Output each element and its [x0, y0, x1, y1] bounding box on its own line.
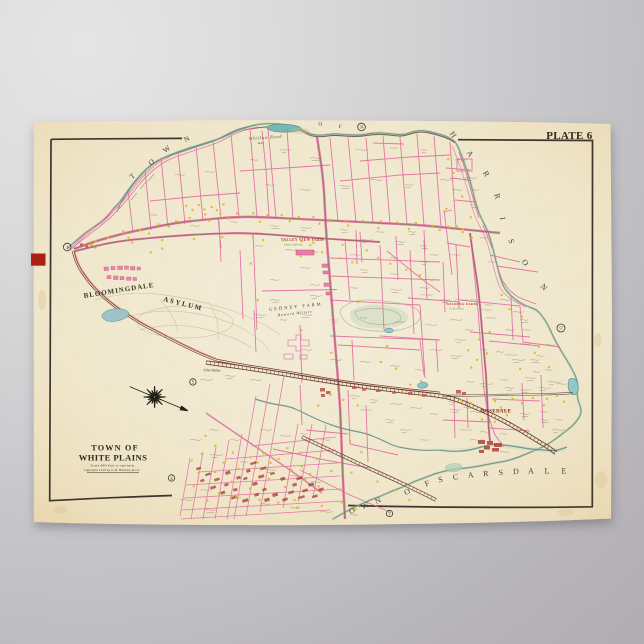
svg-text:S. M. Orser: S. M. Orser	[449, 307, 465, 311]
svg-text:WILDING FARM: WILDING FARM	[446, 302, 478, 306]
svg-text:D: D	[513, 467, 519, 476]
svg-text:57: 57	[559, 325, 563, 330]
svg-text:R.D.: R.D.	[257, 141, 264, 145]
svg-text:L: L	[545, 467, 550, 476]
svg-text:WHITE PLAINS: WHITE PLAINS	[79, 453, 148, 463]
svg-text:A: A	[528, 466, 534, 475]
svg-text:TOWN OF: TOWN OF	[91, 444, 139, 453]
svg-text:ROSEDALE: ROSEDALE	[481, 410, 511, 415]
svg-text:Emily Sullivan: Emily Sullivan	[283, 243, 303, 247]
svg-text:Scale 600 feet to one inch.: Scale 600 feet to one inch.	[90, 463, 135, 467]
svg-text:S: S	[498, 468, 503, 477]
svg-text:39: 39	[360, 125, 364, 129]
svg-text:PLATE 6: PLATE 6	[546, 130, 592, 142]
svg-text:E: E	[562, 467, 567, 476]
svg-text:Copyright 1910 by G.W. Bromley: Copyright 1910 by G.W. Bromley & Co.	[84, 468, 141, 472]
